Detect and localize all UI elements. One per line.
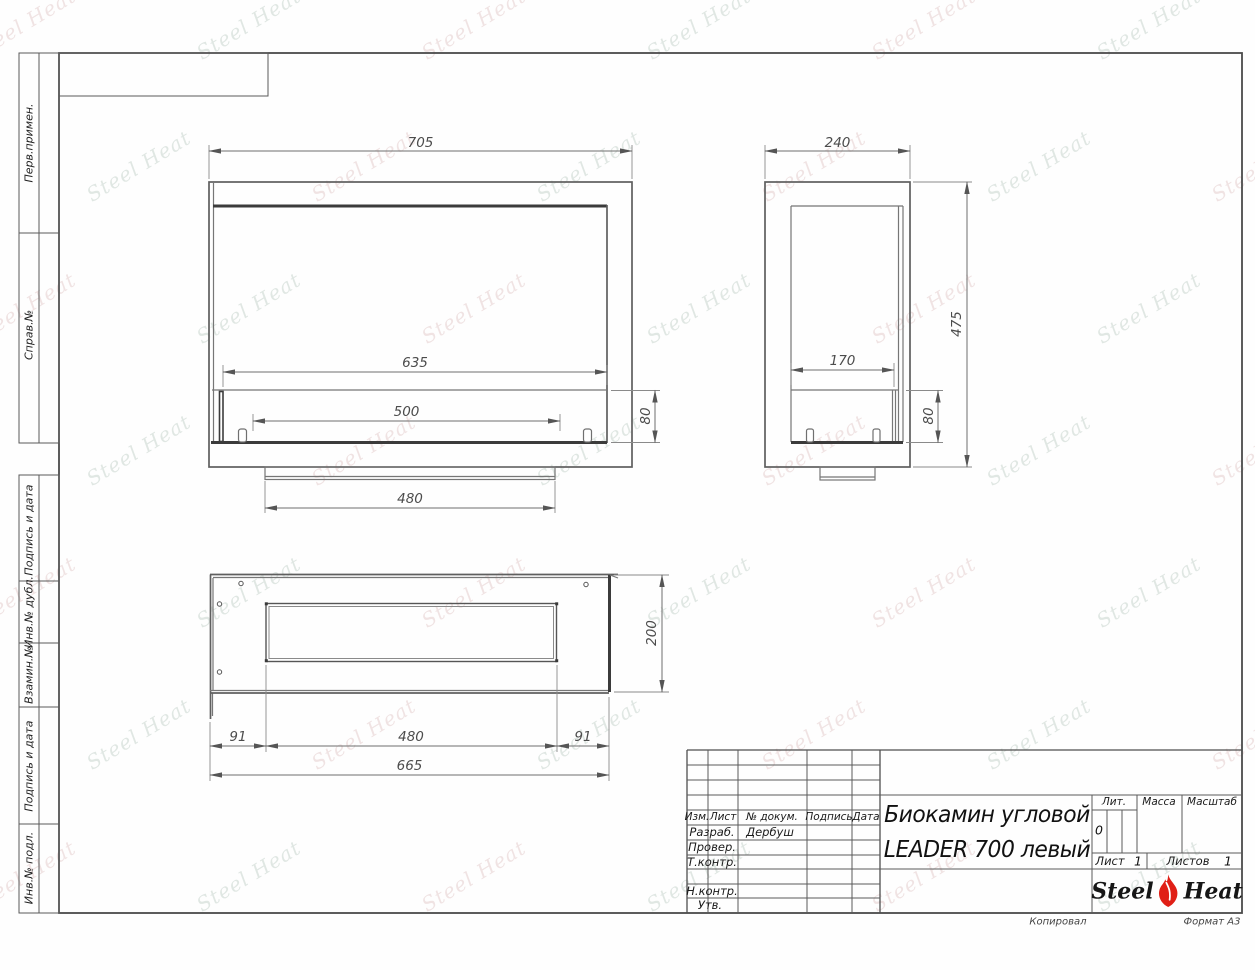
mount-hole [217,602,221,606]
doc-title-line1: Биокамин угловой [884,802,1090,828]
sidebar-label-perv-primen: Перв.примен. [23,103,36,182]
svg-text:475: 475 [949,311,965,337]
sheet-number: 1 [1134,854,1142,869]
format-label: Формат А3 [1184,917,1241,928]
burner-clip [807,429,814,442]
dim-front-glass-width: 635 [223,355,607,387]
logo-word-heat: Heat [1184,878,1243,904]
scale-label: Масштаб [1187,796,1237,808]
role-razrab: Разраб. [689,825,734,839]
svg-text:200: 200 [644,620,660,646]
svg-text:91: 91 [574,729,591,745]
copied-label: Копировал [1029,917,1086,928]
sidebar-label-inv-podl: Инв.№ подл. [23,832,36,904]
sidebar-label-vzam-inv: Взамин.№ [23,646,36,704]
lit-value: 0 [1095,823,1103,838]
role-utv: Утв. [698,898,722,912]
lit-label: Лит. [1102,796,1126,808]
rev-col-list: Лист [710,811,737,823]
burner-clip [239,429,247,442]
dim-side-depth: 240 [765,135,910,179]
dim-front-width: 705 [209,135,632,179]
svg-text:500: 500 [394,404,420,420]
role-tkontr: Т.контр. [687,855,737,869]
svg-text:80: 80 [921,407,937,424]
sheets-total: 1 [1224,854,1232,869]
svg-text:91: 91 [229,729,246,745]
dim-side-burner-depth: 170 [791,353,894,387]
rev-col-doc: № докум. [746,811,798,823]
drawing-sheet: Steel HeatSteel HeatSteel HeatSteel Heat… [0,0,1255,970]
sidebar-label-inv-dubl: Инв.№ дубл. [23,576,36,648]
dim-front-burner-height: 80 [611,391,660,443]
svg-text:480: 480 [398,729,424,745]
flame-icon [1156,875,1182,908]
mass-label: Масса [1142,796,1175,808]
dim-side-burner-height: 80 [906,391,943,443]
sidebar-label-sprav-no: Справ.№ [23,310,36,360]
svg-text:240: 240 [825,135,851,151]
top-designation-box [59,53,268,96]
svg-text:80: 80 [638,407,654,424]
doc-title-line2: LEADER 700 левый [884,837,1090,863]
sheets-label: Листов [1167,854,1210,868]
mount-hole [584,582,588,586]
logo-word-steel: Steel [1091,878,1153,904]
rev-col-izm: Изм. [685,811,710,823]
steelheat-logo: Steel Heat [1091,875,1243,908]
role-razrab-name: Дербуш [746,825,794,839]
sidebar-label-podpis-data-2: Подпись и дата [23,720,36,811]
dim-plan-bottom-chain: 91 480 91 665 [210,665,609,781]
rev-col-date: Дата [852,811,879,823]
burner-clip [584,429,592,442]
svg-text:705: 705 [408,135,434,151]
sheet-label: Лист [1095,854,1124,868]
burner-clip [873,429,880,442]
dim-front-base-width: 480 [265,481,555,513]
sidebar-label-podpis-data-1: Подпись и дата [23,484,36,575]
rev-col-sign: Подпись [805,811,852,823]
role-prover: Провер. [688,840,736,854]
dim-front-burner-width: 500 [253,404,560,431]
svg-text:665: 665 [397,758,423,774]
plan-view: 200 91 480 91 665 [210,575,669,782]
svg-text:170: 170 [830,353,856,369]
svg-text:480: 480 [397,491,423,507]
mount-hole [239,581,243,585]
mount-hole [217,670,221,674]
svg-text:635: 635 [402,355,428,371]
side-view: 240 475 170 80 [765,135,972,480]
role-nkontr: Н.контр. [686,884,737,898]
front-view: 705 635 500 80 [209,135,660,513]
dim-plan-depth: 200 [614,575,669,692]
